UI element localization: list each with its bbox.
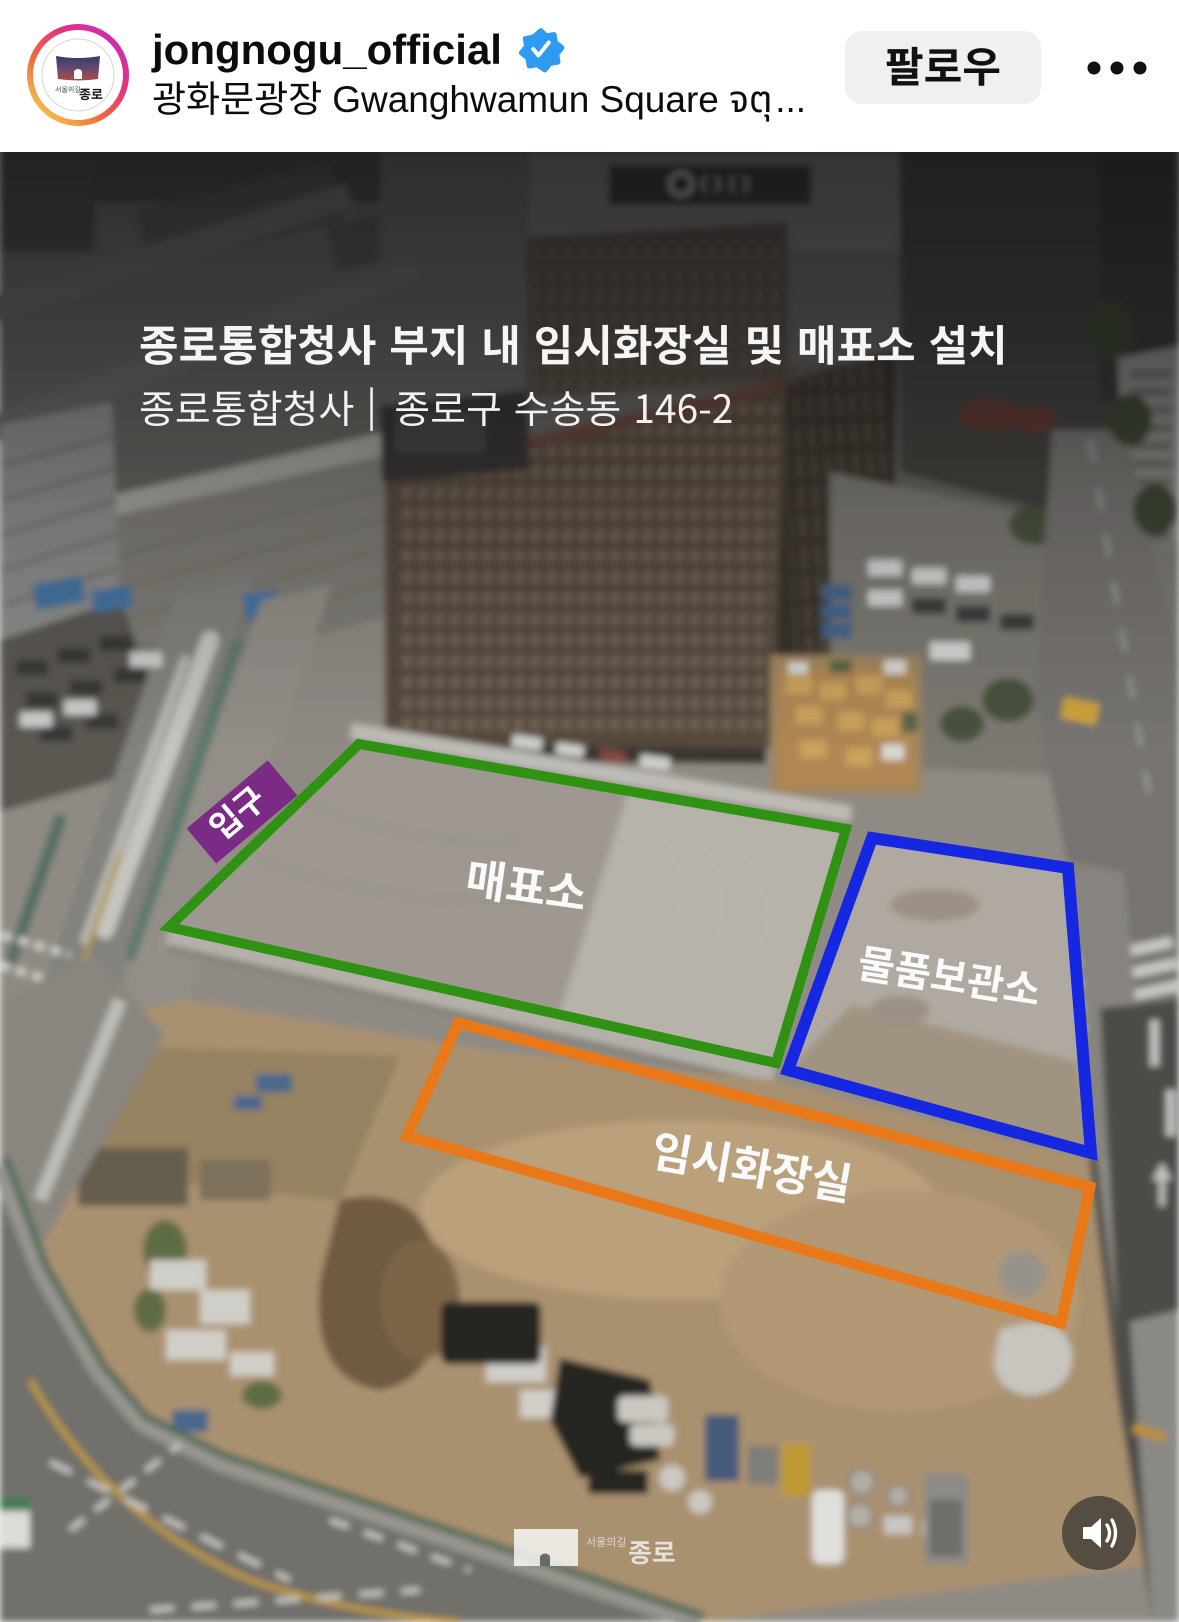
svg-text:Gwanghwamun Square: Gwanghwamun Square	[332, 79, 719, 120]
svg-text:jongnogu_official: jongnogu_official	[151, 26, 502, 73]
svg-text:...: ...	[775, 79, 806, 120]
